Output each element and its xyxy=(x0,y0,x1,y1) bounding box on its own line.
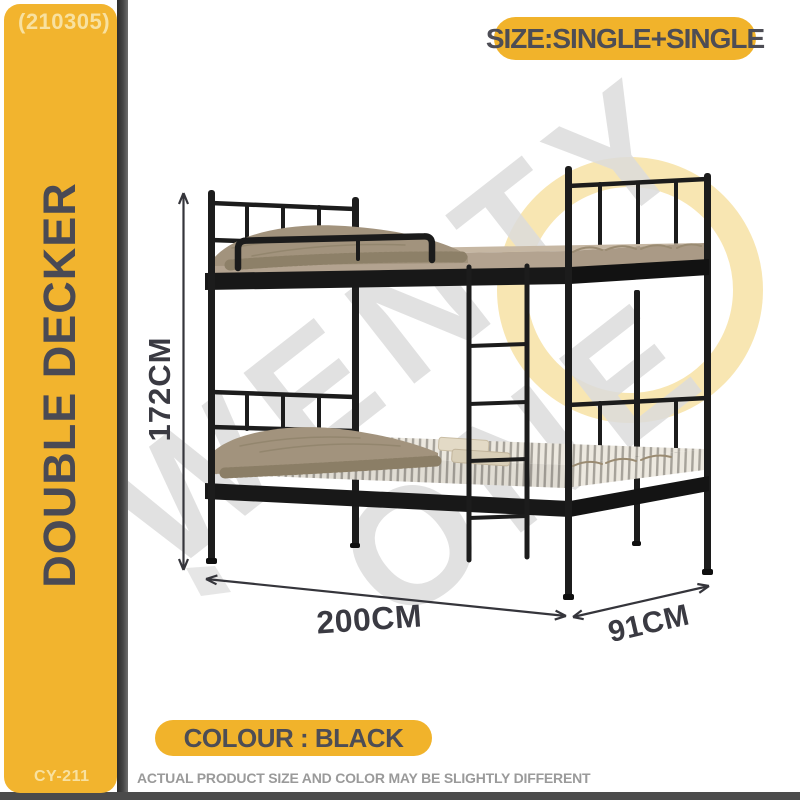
product-image-canvas: TWENTY ONE xyxy=(0,0,800,800)
length-label: 200CM xyxy=(315,597,423,640)
sidebar-shadow xyxy=(117,0,128,792)
product-title: DOUBLE DECKER xyxy=(34,182,86,588)
disclaimer-text: ACTUAL PRODUCT SIZE AND COLOR MAY BE SLI… xyxy=(137,770,590,786)
colour-badge: COLOUR : BLACK xyxy=(155,720,432,756)
height-label: 172CM xyxy=(142,337,177,442)
batch-code: (210305) xyxy=(18,9,110,35)
bottom-frame-bar xyxy=(0,792,800,800)
sidebar: (210305) DOUBLE DECKER CY-211 xyxy=(4,4,117,793)
model-code: CY-211 xyxy=(34,768,89,786)
size-badge: SIZE:SINGLE+SINGLE xyxy=(494,17,756,60)
